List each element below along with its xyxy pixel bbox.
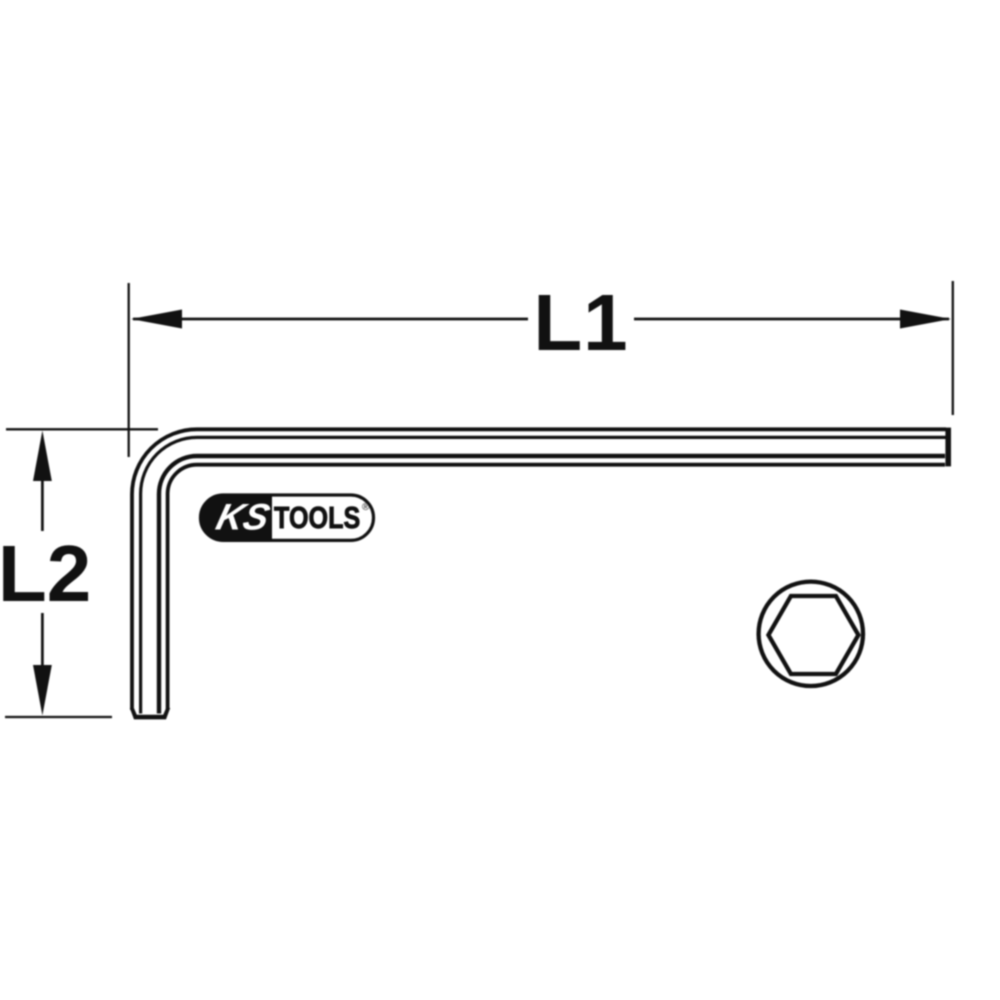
svg-text:TOOLS: TOOLS xyxy=(274,501,360,535)
svg-text:L2: L2 xyxy=(0,529,91,618)
svg-text:L1: L1 xyxy=(533,278,628,367)
svg-text:®: ® xyxy=(362,502,370,513)
svg-text:KS: KS xyxy=(212,496,274,537)
